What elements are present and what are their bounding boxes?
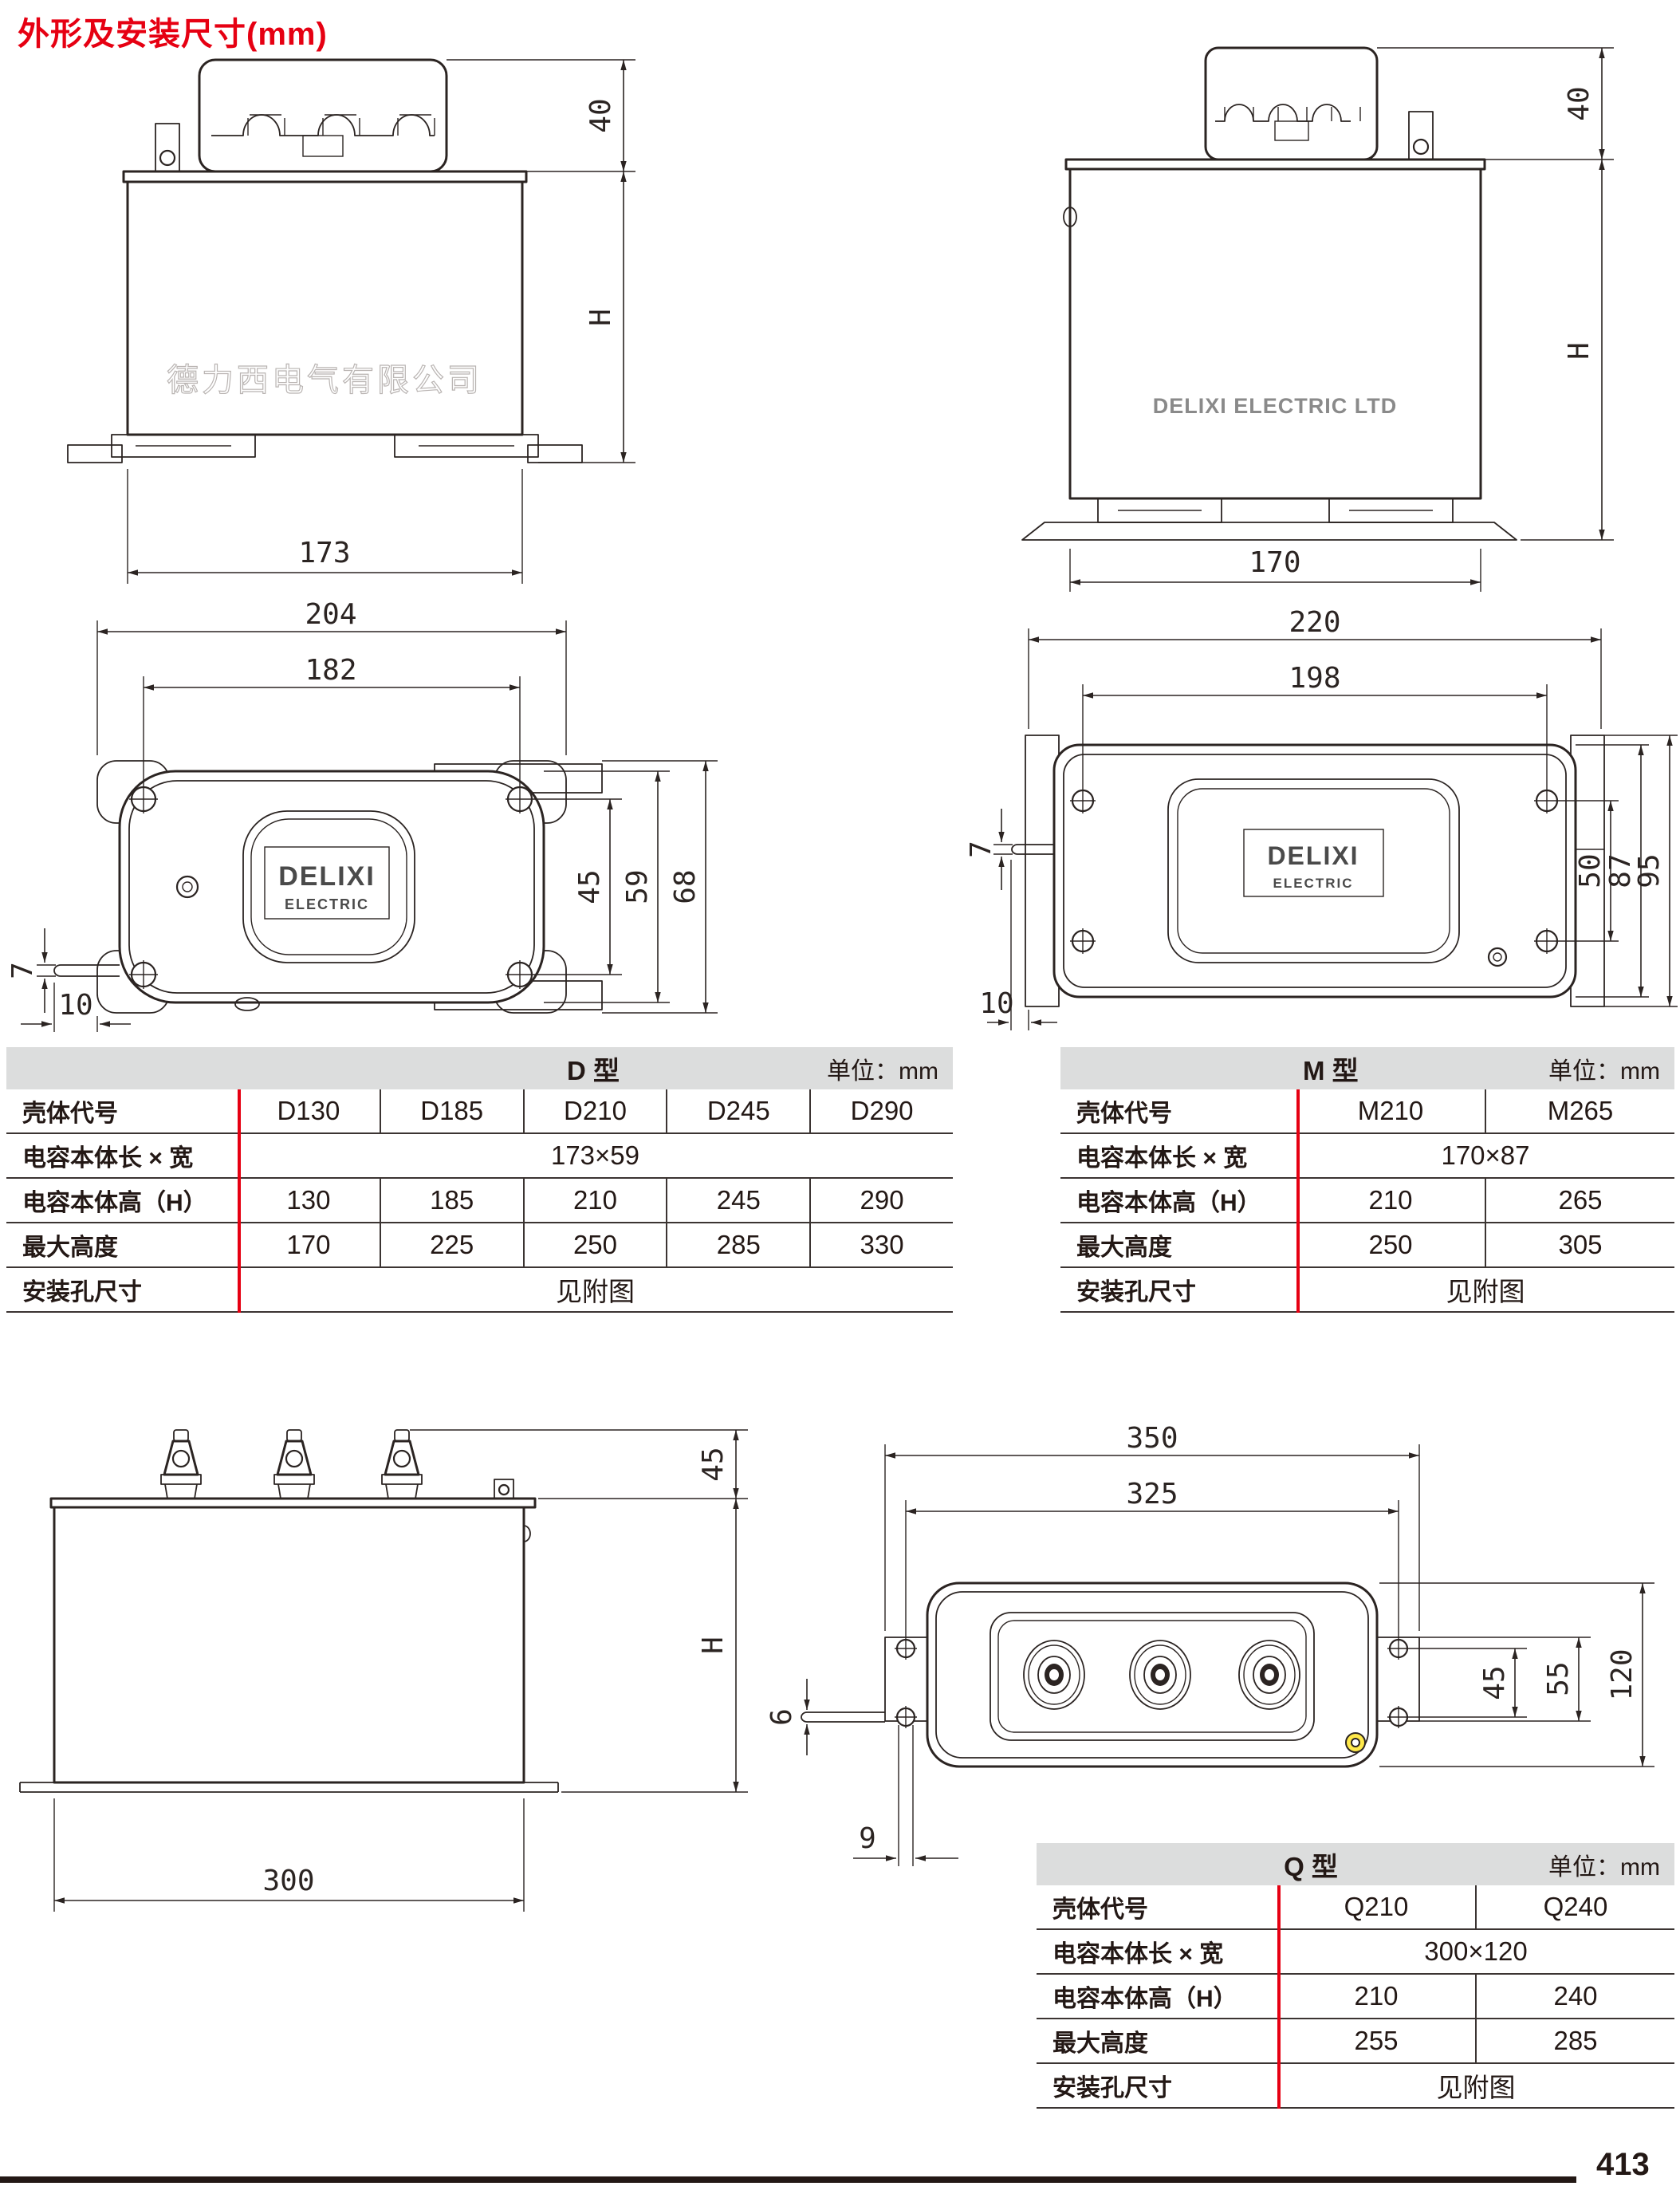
table-row: 壳体代号 Q210 Q240: [1037, 1885, 1674, 1930]
dim-120: 120: [1606, 1648, 1639, 1700]
plate-line1: DELIXI: [278, 861, 376, 892]
table-row: 电容本体高（H） 210 240: [1037, 1975, 1674, 2019]
dim-10: 10: [979, 987, 1013, 1020]
row-label: 电容本体长 × 宽: [6, 1134, 238, 1177]
terminals: [161, 1430, 422, 1499]
table-row: 电容本体长 × 宽 300×120: [1037, 1930, 1674, 1975]
footer-rule: [0, 2176, 1576, 2183]
table-unit-label: 单位：mm: [827, 1051, 938, 1086]
dim-350: 350: [1126, 1422, 1178, 1455]
terminal-cover: [199, 60, 447, 171]
dim-182: 182: [305, 654, 356, 687]
top-plate: [51, 1499, 535, 1507]
terminal-cover: [1206, 48, 1377, 160]
red-divider: [1296, 1089, 1300, 1313]
table-cell: 250: [1296, 1223, 1486, 1266]
table-cell: 305: [1486, 1223, 1674, 1266]
table-cell: D245: [667, 1089, 811, 1132]
table-cell: 300×120: [1277, 1930, 1674, 1973]
table-type-label: Q 型: [1284, 1845, 1338, 1884]
row-label: 最大高度: [1060, 1223, 1296, 1266]
plate-line2: ELECTRIC: [285, 896, 369, 912]
table-cell: D130: [238, 1089, 381, 1132]
dim-H: H: [584, 309, 617, 326]
m-type-table: M 型 单位：mm 壳体代号 M210 M265 电容本体长 × 宽 170×8…: [1060, 1047, 1674, 1313]
table-row: 安装孔尺寸 见附图: [6, 1268, 953, 1313]
table-cell: 265: [1486, 1179, 1674, 1222]
red-divider: [1277, 1885, 1281, 2109]
table-cell: D290: [811, 1089, 953, 1132]
q-front-drawing: 45 H 300: [16, 1424, 765, 1926]
side-lug: [1409, 112, 1433, 160]
dim-7: 7: [6, 962, 39, 979]
bottom-flange: [20, 1782, 558, 1792]
table-cell: Q240: [1477, 1885, 1674, 1928]
table-row: 电容本体长 × 宽 173×59: [6, 1134, 953, 1179]
d-type-table: D 型 单位：mm 壳体代号 D130 D185 D210 D245 D290 …: [6, 1047, 953, 1313]
table-cell: 见附图: [1277, 2064, 1674, 2107]
table-row: 最大高度 170 225 250 285 330: [6, 1223, 953, 1268]
bolt: [1489, 948, 1506, 966]
table-row: 最大高度 250 305: [1060, 1223, 1674, 1268]
dim-87: 87: [1604, 853, 1637, 888]
row-label: 电容本体高（H）: [1060, 1179, 1296, 1222]
row-label: 壳体代号: [1037, 1885, 1277, 1928]
table-row: 电容本体长 × 宽 170×87: [1060, 1134, 1674, 1179]
table-header: Q 型 单位：mm: [1037, 1843, 1674, 1885]
table-cell: 225: [381, 1223, 525, 1266]
catalog-page: 外形及安装尺寸(mm) 德力西电气有限公司: [0, 0, 1680, 2190]
left-pin: [801, 1712, 885, 1722]
table-cell: 285: [1477, 2019, 1674, 2062]
dim-55: 55: [1542, 1661, 1575, 1696]
row-label: 电容本体高（H）: [6, 1179, 238, 1222]
m-front-drawing: DELIXI ELECTRIC LTD 40 H 170: [1006, 32, 1676, 602]
capacitor-body: [1070, 169, 1481, 498]
table-cell: 185: [381, 1179, 525, 1222]
row-label: 电容本体长 × 宽: [1060, 1134, 1296, 1177]
table-cell: 210: [1277, 1975, 1477, 2018]
q-type-table: Q 型 单位：mm 壳体代号 Q210 Q240 电容本体长 × 宽 300×1…: [1037, 1843, 1674, 2109]
table-cell: 245: [667, 1179, 811, 1222]
table-cell: 见附图: [1296, 1268, 1674, 1311]
table-row: 最大高度 255 285: [1037, 2019, 1674, 2064]
dim-68: 68: [669, 869, 702, 904]
red-divider: [238, 1089, 241, 1313]
watermark-text: 德力西电气有限公司: [167, 363, 482, 398]
table-cell: 210: [1296, 1179, 1486, 1222]
table-unit-label: 单位：mm: [1548, 1051, 1660, 1086]
plate-line1: DELIXI: [1267, 841, 1359, 870]
table-row: 安装孔尺寸 见附图: [1037, 2064, 1674, 2109]
m-top-drawing: DELIXI ELECTRIC 220 198 50 87: [981, 616, 1680, 1046]
dim-40: 40: [1563, 86, 1595, 120]
dim-173: 173: [298, 537, 350, 569]
plate-line2: ELECTRIC: [1273, 876, 1354, 891]
dim-325: 325: [1126, 1478, 1178, 1511]
table-type-label: D 型: [567, 1050, 620, 1088]
row-label: 电容本体高（H）: [1037, 1975, 1277, 2018]
bolt: [177, 876, 198, 897]
brand-text: DELIXI ELECTRIC LTD: [1153, 394, 1398, 418]
table-cell: 170: [238, 1223, 381, 1266]
top-plate: [1066, 160, 1485, 169]
mounting-feet: [68, 435, 582, 463]
side-lug: [155, 124, 179, 171]
dim-45: 45: [573, 869, 606, 904]
row-label: 电容本体长 × 宽: [1037, 1930, 1277, 1973]
row-label: 安装孔尺寸: [1060, 1268, 1296, 1311]
table-row: 安装孔尺寸 见附图: [1060, 1268, 1674, 1313]
dim-6: 6: [765, 1708, 798, 1726]
table-cell: D210: [525, 1089, 668, 1132]
dim-50: 50: [1574, 853, 1607, 888]
mounting-feet: [1022, 498, 1517, 540]
table-cell: 240: [1477, 1975, 1674, 2018]
dim-45: 45: [1478, 1665, 1511, 1700]
bolt: [1346, 1733, 1365, 1752]
dim-9: 9: [859, 1822, 876, 1855]
side-lug: [494, 1479, 513, 1499]
q-top-drawing: 350 325 45 55 120 6 9: [757, 1432, 1680, 1894]
dim-95: 95: [1633, 853, 1666, 888]
d-front-drawing: 德力西电气有限公司 40 H 173: [60, 48, 690, 598]
row-label: 安装孔尺寸: [1037, 2064, 1277, 2107]
table-cell: M265: [1486, 1089, 1674, 1132]
table-type-label: M 型: [1303, 1050, 1359, 1088]
table-cell: D185: [381, 1089, 525, 1132]
table-cell: 173×59: [238, 1134, 953, 1177]
table-cell: Q210: [1277, 1885, 1477, 1928]
table-cell: 170×87: [1296, 1134, 1674, 1177]
table-cell: 见附图: [238, 1268, 953, 1311]
lip: [54, 965, 120, 976]
row-label: 壳体代号: [6, 1089, 238, 1132]
d-top-drawing: DELIXI ELECTRIC 204 182 45 59: [8, 608, 813, 1042]
dim-59: 59: [621, 869, 654, 904]
dim-H: H: [697, 1637, 730, 1654]
row-label: 壳体代号: [1060, 1089, 1296, 1132]
table-cell: 290: [811, 1179, 953, 1222]
table-cell: 285: [667, 1223, 811, 1266]
table-cell: 210: [525, 1179, 668, 1222]
top-plate: [124, 171, 526, 182]
table-cell: M210: [1296, 1089, 1486, 1132]
dim-220: 220: [1289, 606, 1340, 639]
table-row: 壳体代号 M210 M265: [1060, 1089, 1674, 1134]
capacitor-body: [54, 1507, 524, 1782]
table-cell: 250: [525, 1223, 668, 1266]
dim-170: 170: [1249, 546, 1300, 579]
table-header: D 型 单位：mm: [6, 1047, 953, 1089]
table-cell: 255: [1277, 2019, 1477, 2062]
dim-H: H: [1563, 342, 1595, 360]
table-row: 电容本体高（H） 130 185 210 245 290: [6, 1179, 953, 1223]
row-label: 最大高度: [6, 1223, 238, 1266]
table-cell: 330: [811, 1223, 953, 1266]
dim-7: 7: [965, 841, 997, 858]
table-header: M 型 单位：mm: [1060, 1047, 1674, 1089]
row-label: 安装孔尺寸: [6, 1268, 238, 1311]
dim-198: 198: [1289, 662, 1340, 695]
table-row: 电容本体高（H） 210 265: [1060, 1179, 1674, 1223]
dim-10: 10: [58, 989, 92, 1022]
dim-300: 300: [262, 1865, 314, 1897]
dim-45: 45: [697, 1447, 730, 1481]
left-pin: [1012, 845, 1054, 854]
dim-204: 204: [305, 598, 356, 631]
table-cell: 130: [238, 1179, 381, 1222]
row-label: 最大高度: [1037, 2019, 1277, 2062]
table-row: 壳体代号 D130 D185 D210 D245 D290: [6, 1089, 953, 1134]
dim-40: 40: [584, 98, 617, 132]
table-unit-label: 单位：mm: [1548, 1847, 1660, 1882]
page-number: 413: [1596, 2147, 1650, 2183]
